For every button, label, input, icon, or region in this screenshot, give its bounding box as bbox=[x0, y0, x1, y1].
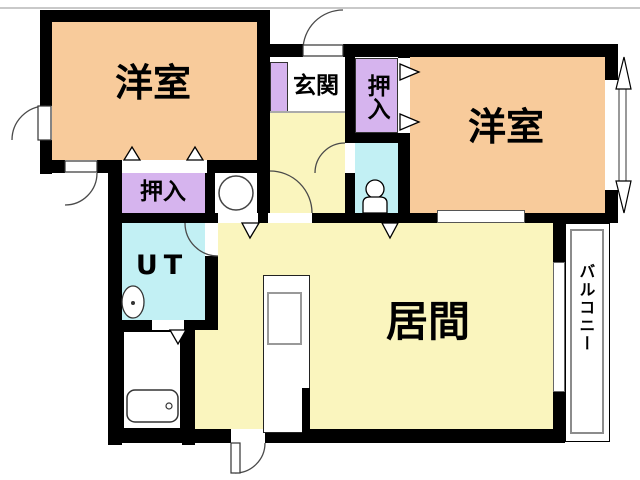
room-label-balcony: バルコニー bbox=[577, 263, 594, 353]
room-label-entrance: 玄関 bbox=[293, 74, 339, 98]
door-opening bbox=[152, 320, 184, 330]
room-label-utility: UT bbox=[136, 252, 188, 280]
entrance-step-line bbox=[270, 111, 345, 113]
door-opening bbox=[231, 429, 265, 443]
wall-segment bbox=[355, 133, 398, 143]
floor-plan: 洋室 洋室 居間 押入 押入 玄関 UT バルコニー bbox=[0, 0, 640, 480]
room-label-western-right: 洋室 bbox=[468, 108, 544, 148]
wall-segment bbox=[257, 10, 270, 223]
wall-segment bbox=[343, 44, 618, 57]
window-opening bbox=[65, 160, 97, 173]
window-arrow-icon bbox=[616, 57, 631, 89]
wall-segment bbox=[302, 388, 310, 433]
room-label-closet-left: 押入 bbox=[140, 180, 186, 204]
window-pane bbox=[619, 82, 626, 188]
wall-segment bbox=[195, 320, 218, 330]
door-swing-arc bbox=[235, 443, 265, 473]
wall-segment bbox=[257, 44, 303, 57]
room-label-living: 居間 bbox=[386, 300, 470, 344]
window-opening bbox=[605, 80, 618, 190]
wall-segment bbox=[182, 320, 195, 445]
window-swing-arc bbox=[65, 173, 97, 205]
door-opening bbox=[205, 223, 218, 256]
image-border-line bbox=[0, 7, 640, 9]
room-laundry-alcove bbox=[215, 172, 258, 213]
room-label-closet-right: 押入 bbox=[364, 74, 388, 120]
room-toilet bbox=[355, 143, 398, 213]
wall-segment bbox=[345, 44, 355, 223]
wall-segment bbox=[205, 172, 215, 215]
closet-door-opening bbox=[122, 160, 207, 173]
wall-segment bbox=[40, 10, 270, 22]
door-opening bbox=[268, 213, 312, 223]
closet-door-opening bbox=[398, 58, 410, 133]
room-label-western-left: 洋室 bbox=[115, 64, 191, 104]
kitchen-sink bbox=[267, 292, 302, 345]
room-bathroom bbox=[122, 330, 182, 430]
wall-segment bbox=[108, 160, 122, 445]
room-hallway bbox=[270, 113, 345, 213]
door-opening bbox=[218, 213, 258, 223]
shoe-cabinet bbox=[270, 62, 288, 112]
wall-segment bbox=[108, 429, 565, 443]
window-opening bbox=[40, 106, 52, 140]
door-opening bbox=[345, 143, 355, 173]
door-leaf bbox=[231, 443, 240, 473]
room-living-extension bbox=[195, 330, 218, 432]
entrance-door-opening bbox=[303, 44, 343, 57]
balcony-window bbox=[553, 262, 565, 392]
sliding-door bbox=[437, 210, 525, 223]
window-arrow-icon bbox=[616, 181, 631, 213]
wall-segment bbox=[40, 10, 52, 174]
